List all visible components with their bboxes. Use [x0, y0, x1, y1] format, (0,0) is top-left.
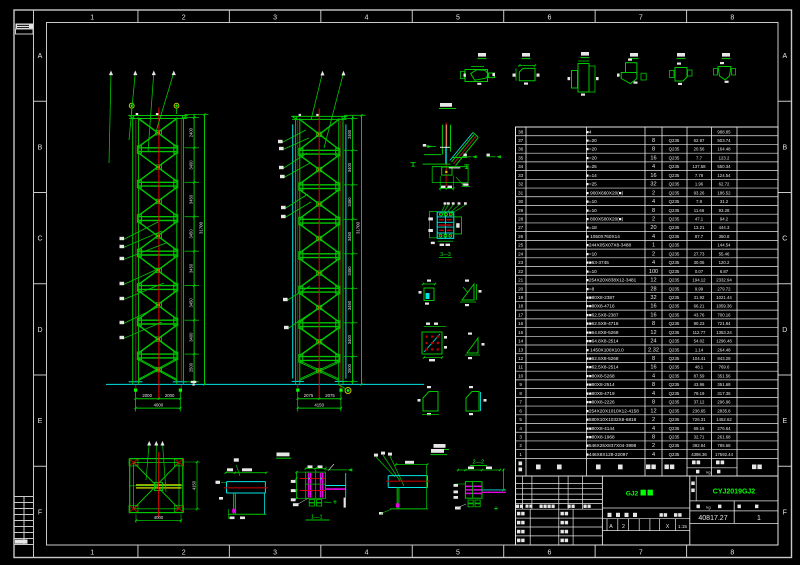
- svg-text:D: D: [782, 327, 787, 334]
- svg-text:C: C: [782, 236, 787, 243]
- svg-text:30.05: 30.05: [694, 260, 705, 265]
- svg-text:Q235: Q235: [669, 321, 680, 326]
- svg-text:1: 1: [90, 550, 94, 557]
- svg-text:kg: kg: [706, 504, 710, 509]
- svg-text:23: 23: [518, 260, 524, 265]
- svg-text:20: 20: [518, 286, 524, 291]
- svg-text:■446X8X128-22097: ■446X8X128-22097: [586, 452, 628, 457]
- svg-text:Q235: Q235: [669, 382, 680, 387]
- svg-text:CYJ2019GJ2: CYJ2019GJ2: [713, 489, 756, 496]
- svg-text:69.16: 69.16: [694, 426, 705, 431]
- svg-text:0.07: 0.07: [695, 269, 704, 274]
- svg-text:Q235: Q235: [669, 269, 680, 274]
- svg-text:7: 7: [639, 550, 643, 557]
- svg-text:24: 24: [518, 251, 524, 256]
- svg-text:8: 8: [730, 15, 734, 22]
- svg-text:1452.62: 1452.62: [716, 417, 732, 422]
- svg-text:■■80X8-1968: ■■80X8-1968: [586, 435, 615, 440]
- svg-text:1059.36: 1059.36: [716, 304, 732, 309]
- svg-text:kg: kg: [706, 470, 710, 475]
- svg-text:Q235: Q235: [669, 443, 680, 448]
- svg-text:194.12: 194.12: [692, 278, 706, 283]
- svg-text:32: 32: [518, 182, 524, 187]
- svg-text:■4: ■4: [586, 129, 592, 134]
- svg-text:1: 1: [90, 15, 94, 22]
- svg-text:■■64.8X8-5268: ■■64.8X8-5268: [586, 330, 619, 335]
- svg-text:87.7: 87.7: [695, 234, 704, 239]
- svg-text:Q235: Q235: [669, 199, 680, 204]
- svg-text:X: X: [666, 524, 670, 530]
- svg-text:■=18: ■=18: [586, 225, 597, 230]
- svg-text:4: 4: [519, 426, 522, 431]
- svg-text:Q235: Q235: [669, 365, 680, 370]
- svg-text:3450: 3450: [347, 300, 352, 310]
- svg-text:■254X20X1010X12-4158: ■254X20X1010X12-4158: [586, 408, 639, 413]
- svg-text:■■80X8-5268: ■■80X8-5268: [586, 373, 615, 378]
- svg-text:22: 22: [518, 269, 524, 274]
- svg-text:Q235: Q235: [669, 373, 680, 378]
- svg-text:34: 34: [518, 164, 524, 169]
- svg-text:1: 1: [757, 515, 761, 522]
- svg-text:2400: 2400: [188, 127, 193, 137]
- svg-text:8: 8: [652, 321, 655, 327]
- svg-text:Q235: Q235: [669, 138, 680, 143]
- svg-text:A: A: [38, 53, 43, 60]
- svg-text:29: 29: [518, 208, 524, 213]
- svg-text:2: 2: [182, 15, 186, 22]
- svg-text:■=10: ■=10: [586, 199, 597, 204]
- svg-text:3: 3: [273, 15, 277, 22]
- svg-text:20.56: 20.56: [694, 147, 705, 152]
- svg-text:10: 10: [518, 373, 524, 378]
- svg-text:B: B: [38, 144, 43, 151]
- svg-text:Q235: Q235: [669, 452, 680, 457]
- svg-text:186.52: 186.52: [717, 190, 731, 195]
- svg-text:C: C: [37, 236, 42, 243]
- svg-text:■■62.5X8-4716: ■■62.5X8-4716: [586, 321, 619, 326]
- svg-text:2332.94: 2332.94: [716, 278, 732, 283]
- svg-text:16: 16: [650, 312, 656, 318]
- svg-text:3: 3: [273, 550, 277, 557]
- svg-text:35: 35: [518, 155, 524, 160]
- svg-text:11.66: 11.66: [694, 208, 705, 213]
- svg-text:317.36: 317.36: [717, 391, 731, 396]
- svg-text:1296.48: 1296.48: [716, 339, 732, 344]
- svg-text:2075: 2075: [304, 393, 314, 398]
- svg-text:550.34: 550.34: [717, 164, 731, 169]
- svg-text:■■63-3745: ■■63-3745: [586, 260, 609, 265]
- svg-text:6: 6: [519, 408, 522, 413]
- svg-text:38: 38: [518, 129, 524, 134]
- svg-text:■ 1450X100X10.0: ■ 1450X100X10.0: [586, 347, 624, 352]
- svg-text:32: 32: [650, 295, 656, 301]
- svg-text:16: 16: [650, 304, 656, 310]
- svg-text:Q235: Q235: [669, 408, 680, 413]
- svg-text:21: 21: [518, 278, 524, 283]
- svg-text:■=20: ■=20: [586, 138, 597, 143]
- svg-text:3450: 3450: [188, 229, 193, 239]
- svg-text:4: 4: [652, 260, 655, 266]
- svg-text:Q235: Q235: [669, 391, 680, 396]
- svg-text:4: 4: [652, 426, 655, 432]
- svg-text:15: 15: [518, 330, 524, 335]
- svg-text:31.2: 31.2: [720, 199, 729, 204]
- svg-text:264.48: 264.48: [717, 347, 731, 352]
- svg-text:■■62.5X8-2387: ■■62.5X8-2387: [586, 312, 619, 317]
- svg-text:4: 4: [652, 452, 655, 458]
- svg-text:1: 1: [519, 452, 522, 457]
- svg-text:43.76: 43.76: [694, 312, 705, 317]
- svg-text:8: 8: [652, 400, 655, 406]
- svg-text:2: 2: [652, 417, 655, 423]
- svg-text:2: 2: [182, 550, 186, 557]
- svg-text:5: 5: [456, 15, 460, 22]
- svg-text:20: 20: [650, 225, 656, 231]
- svg-text:3400: 3400: [188, 332, 193, 342]
- svg-text:62.97: 62.97: [694, 138, 705, 143]
- svg-text:13: 13: [518, 347, 524, 352]
- svg-text:48.1: 48.1: [695, 365, 704, 370]
- svg-text:Q235: Q235: [669, 164, 680, 169]
- svg-text:350.8: 350.8: [719, 234, 730, 239]
- svg-text:■244X05X07X8-3488: ■244X05X07X8-3488: [586, 243, 631, 248]
- svg-text:40817.27: 40817.27: [698, 515, 727, 522]
- svg-text:94.2: 94.2: [720, 216, 729, 221]
- svg-text:■■80X8-2387: ■■80X8-2387: [586, 295, 615, 300]
- svg-text:93.26: 93.26: [694, 190, 705, 195]
- svg-text:Q235: Q235: [669, 347, 680, 352]
- svg-text:26: 26: [518, 234, 524, 239]
- svg-text:Q235: Q235: [669, 208, 680, 213]
- svg-text:25: 25: [518, 243, 524, 248]
- svg-text:12: 12: [650, 278, 656, 284]
- svg-text:Q235: Q235: [669, 251, 680, 256]
- svg-text:Q235: Q235: [669, 312, 680, 317]
- svg-text:14: 14: [518, 339, 524, 344]
- svg-text:■■80X8-4716: ■■80X8-4716: [586, 304, 615, 309]
- svg-text:Q235: Q235: [669, 234, 680, 239]
- svg-text:Q235: Q235: [669, 417, 680, 422]
- svg-text:Q235: Q235: [669, 304, 680, 309]
- svg-text:28: 28: [518, 216, 524, 221]
- svg-text:5: 5: [519, 417, 522, 422]
- svg-text:Q235: Q235: [669, 147, 680, 152]
- svg-text:3450: 3450: [347, 266, 352, 276]
- svg-text:16: 16: [518, 321, 524, 326]
- svg-text:■ 1050X760X14: ■ 1050X760X14: [586, 234, 620, 239]
- svg-text:3450: 3450: [188, 263, 193, 273]
- svg-text:7: 7: [639, 15, 643, 22]
- svg-text:■254X20X838X12-3481: ■254X20X838X12-3481: [586, 278, 637, 283]
- svg-text:11: 11: [518, 365, 523, 370]
- svg-text:■=10: ■=10: [586, 269, 597, 274]
- svg-text:2.32: 2.32: [648, 347, 659, 353]
- svg-text:■■80X8-2226: ■■80X8-2226: [586, 400, 615, 405]
- svg-text:47.1: 47.1: [695, 216, 704, 221]
- svg-text:GJ2: GJ2: [626, 491, 639, 498]
- svg-text:■=20: ■=20: [586, 155, 597, 160]
- svg-text:19: 19: [518, 295, 524, 300]
- svg-text:100: 100: [649, 269, 658, 275]
- svg-text:7: 7: [519, 400, 522, 405]
- svg-text:A: A: [609, 524, 613, 530]
- svg-text:66.21: 66.21: [694, 304, 705, 309]
- svg-text:■546X25X837X04-3998: ■546X25X837X04-3998: [586, 443, 637, 448]
- svg-text:17: 17: [518, 312, 524, 317]
- svg-text:F: F: [38, 509, 42, 516]
- svg-text:Q235: Q235: [669, 435, 680, 440]
- svg-text:4000: 4000: [154, 403, 164, 408]
- svg-text:■=25: ■=25: [586, 164, 597, 169]
- svg-text:4150: 4150: [191, 480, 196, 490]
- svg-text:Q235: Q235: [669, 295, 680, 300]
- svg-text:16: 16: [650, 173, 656, 179]
- svg-text:1353.24: 1353.24: [716, 330, 732, 335]
- svg-text:4150: 4150: [314, 403, 324, 408]
- svg-text:■580X10X1032X8-6818: ■580X10X1032X8-6818: [586, 417, 637, 422]
- svg-text:Q235: Q235: [669, 400, 680, 405]
- svg-text:Q235: Q235: [669, 339, 680, 344]
- svg-text:13.21: 13.21: [694, 225, 705, 230]
- svg-text:8: 8: [519, 391, 522, 396]
- svg-text:79.19: 79.19: [694, 391, 705, 396]
- svg-text:4: 4: [365, 550, 369, 557]
- svg-text:37: 37: [518, 138, 524, 143]
- svg-text:3400: 3400: [188, 160, 193, 170]
- svg-text:4000: 4000: [154, 515, 164, 520]
- svg-text:16: 16: [650, 155, 656, 161]
- svg-text:28: 28: [650, 286, 656, 292]
- svg-text:■=14: ■=14: [586, 173, 597, 178]
- svg-text:Q235: Q235: [669, 243, 680, 248]
- svg-text:2400: 2400: [347, 129, 352, 139]
- svg-text:30: 30: [518, 199, 524, 204]
- svg-text:■■62.5X8-5268: ■■62.5X8-5268: [586, 356, 619, 361]
- svg-text:62.72: 62.72: [719, 182, 730, 187]
- svg-text:36: 36: [518, 147, 524, 152]
- svg-text:2835.8: 2835.8: [717, 408, 731, 413]
- svg-text:43.96: 43.96: [694, 382, 705, 387]
- svg-text:2: 2: [652, 443, 655, 449]
- svg-text:4: 4: [365, 15, 369, 22]
- svg-text:27.73: 27.73: [694, 251, 705, 256]
- svg-text:12: 12: [518, 356, 524, 361]
- svg-text:Q235: Q235: [669, 216, 680, 221]
- svg-text:■■62.5X8-2514: ■■62.5X8-2514: [586, 365, 619, 370]
- svg-text:D: D: [37, 327, 42, 334]
- svg-text:■■64.8X8-2514: ■■64.8X8-2514: [586, 339, 619, 344]
- svg-text:Q235: Q235: [669, 190, 680, 195]
- svg-text:■■80X8-2514: ■■80X8-2514: [586, 382, 615, 387]
- svg-text:2: 2: [519, 443, 522, 448]
- svg-text:2075: 2075: [325, 393, 335, 398]
- svg-text:3: 3: [519, 435, 522, 440]
- svg-text:2—2: 2—2: [472, 460, 484, 466]
- svg-text:■ 900X660X20(■): ■ 900X660X20(■): [586, 190, 624, 195]
- svg-text:503.74: 503.74: [717, 138, 731, 143]
- svg-text:2: 2: [652, 251, 655, 257]
- svg-text:4: 4: [652, 164, 655, 170]
- svg-text:54.02: 54.02: [694, 339, 705, 344]
- svg-text:261.68: 261.68: [717, 435, 731, 440]
- svg-text:4398.36: 4398.36: [691, 452, 707, 457]
- svg-text:8: 8: [652, 147, 655, 153]
- svg-text:4: 4: [652, 199, 655, 205]
- svg-text:31700: 31700: [199, 221, 204, 234]
- svg-text:7.78: 7.78: [695, 173, 704, 178]
- svg-text:6: 6: [547, 15, 551, 22]
- svg-text:1.96: 1.96: [695, 182, 704, 187]
- svg-text:1: 1: [652, 243, 655, 249]
- svg-text:27: 27: [518, 225, 524, 230]
- svg-text:1021.44: 1021.44: [716, 295, 732, 300]
- svg-text:32: 32: [650, 182, 656, 188]
- svg-text:■ 800X500X20(■): ■ 800X500X20(■): [586, 216, 624, 221]
- svg-text:137.58: 137.58: [692, 164, 706, 169]
- svg-text:3450: 3450: [347, 197, 352, 207]
- svg-text:2500: 2500: [188, 362, 193, 372]
- svg-text:2: 2: [652, 190, 655, 196]
- svg-text:700.16: 700.16: [717, 312, 731, 317]
- svg-text:8: 8: [652, 435, 655, 441]
- svg-text:3400: 3400: [347, 162, 352, 172]
- svg-text:Q235: Q235: [669, 426, 680, 431]
- svg-text:1:15: 1:15: [678, 524, 687, 529]
- svg-text:2000: 2000: [142, 393, 152, 398]
- svg-text:3400: 3400: [347, 334, 352, 344]
- svg-text:276.64: 276.64: [717, 426, 731, 431]
- svg-text:3450: 3450: [347, 231, 352, 241]
- svg-text:■=10: ■=10: [586, 251, 597, 256]
- svg-text:144.54: 144.54: [717, 243, 731, 248]
- svg-text:769.6: 769.6: [719, 365, 730, 370]
- svg-text:4: 4: [652, 234, 655, 240]
- svg-text:Q235: Q235: [669, 173, 680, 178]
- svg-text:37.12: 37.12: [694, 400, 705, 405]
- svg-text:9: 9: [519, 382, 522, 387]
- svg-text:18: 18: [518, 304, 524, 309]
- svg-text:■=8: ■=8: [586, 286, 595, 291]
- svg-text:4: 4: [652, 391, 655, 397]
- svg-text:87.59: 87.59: [694, 373, 705, 378]
- svg-text:■=25: ■=25: [586, 182, 597, 187]
- svg-text:Q235: Q235: [669, 278, 680, 283]
- svg-text:7.8: 7.8: [696, 199, 703, 204]
- svg-text:785.68: 785.68: [717, 443, 731, 448]
- svg-text:E: E: [782, 418, 787, 425]
- svg-text:3450: 3450: [188, 298, 193, 308]
- svg-text:Q235: Q235: [669, 182, 680, 187]
- svg-text:55.46: 55.46: [719, 251, 730, 256]
- svg-text:8: 8: [652, 356, 655, 362]
- svg-text:8: 8: [652, 138, 655, 144]
- svg-text:12: 12: [650, 330, 656, 336]
- svg-text:279.72: 279.72: [717, 286, 731, 291]
- svg-text:9.99: 9.99: [695, 286, 704, 291]
- svg-text:444.3: 444.3: [719, 225, 730, 230]
- svg-text:392.84: 392.84: [692, 443, 706, 448]
- svg-text:164.48: 164.48: [717, 147, 731, 152]
- svg-text:5: 5: [456, 550, 460, 557]
- svg-text:93.28: 93.28: [719, 208, 730, 213]
- svg-text:31700: 31700: [356, 221, 361, 234]
- svg-text:■=20: ■=20: [586, 147, 597, 152]
- svg-text:2: 2: [622, 524, 625, 530]
- svg-text:4: 4: [652, 373, 655, 379]
- svg-text:31: 31: [518, 190, 524, 195]
- svg-text:1—1: 1—1: [311, 514, 323, 520]
- svg-text:726.31: 726.31: [692, 417, 706, 422]
- svg-text:Q235: Q235: [669, 260, 680, 265]
- svg-text:A: A: [782, 53, 787, 60]
- svg-text:351.56: 351.56: [717, 373, 731, 378]
- svg-text:296.96: 296.96: [717, 400, 731, 405]
- svg-text:7.7: 7.7: [696, 155, 703, 160]
- svg-text:32.71: 32.71: [694, 435, 705, 440]
- svg-text:Q235: Q235: [669, 330, 680, 335]
- svg-text:■■80X8-4144: ■■80X8-4144: [586, 426, 615, 431]
- svg-text:843.28: 843.28: [717, 356, 731, 361]
- svg-text:90.23: 90.23: [694, 321, 705, 326]
- svg-text:112.77: 112.77: [693, 330, 706, 335]
- svg-text:16: 16: [650, 365, 656, 371]
- svg-text:B: B: [782, 144, 787, 151]
- svg-text:F: F: [783, 509, 787, 516]
- svg-text:E: E: [38, 418, 43, 425]
- svg-text:351.68: 351.68: [717, 382, 731, 387]
- svg-text:24: 24: [650, 339, 656, 345]
- svg-text:Q235: Q235: [669, 155, 680, 160]
- svg-text:■■80X8-4719: ■■80X8-4719: [586, 391, 615, 396]
- svg-text:2500: 2500: [347, 363, 352, 373]
- svg-text:■=10: ■=10: [586, 208, 597, 213]
- svg-text:17592.44: 17592.44: [715, 452, 734, 457]
- svg-text:6.87: 6.87: [720, 269, 729, 274]
- svg-text:2: 2: [652, 216, 655, 222]
- svg-text:123.2: 123.2: [719, 155, 730, 160]
- svg-text:120.2: 120.2: [719, 260, 730, 265]
- svg-text:988.85: 988.85: [717, 129, 731, 134]
- svg-text:Q235: Q235: [669, 286, 680, 291]
- svg-text:8: 8: [730, 550, 734, 557]
- svg-text:8: 8: [652, 208, 655, 214]
- svg-text:721.84: 721.84: [717, 321, 731, 326]
- svg-text:124.54: 124.54: [717, 173, 731, 178]
- svg-text:31.92: 31.92: [694, 295, 705, 300]
- svg-text:Q235: Q235: [669, 356, 680, 361]
- svg-text:2000: 2000: [165, 393, 175, 398]
- svg-text:236.65: 236.65: [692, 408, 706, 413]
- svg-text:12: 12: [650, 408, 656, 414]
- svg-text:1.14: 1.14: [695, 347, 704, 352]
- svg-text:6: 6: [547, 550, 551, 557]
- svg-text:3450: 3450: [188, 194, 193, 204]
- svg-text:Q235: Q235: [669, 225, 680, 230]
- svg-text:33: 33: [518, 173, 524, 178]
- svg-text:104.41: 104.41: [692, 356, 706, 361]
- svg-text:8: 8: [652, 382, 655, 388]
